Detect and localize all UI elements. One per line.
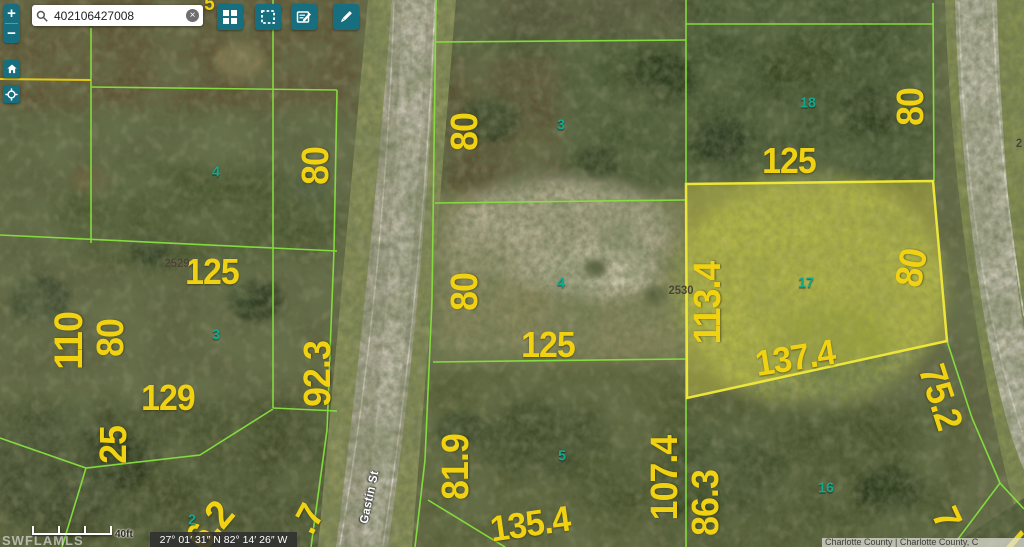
scale-label: 40ft (115, 529, 133, 540)
home-icon (6, 63, 18, 75)
search-icon (36, 10, 48, 22)
annotate-button[interactable] (291, 4, 317, 30)
note-edit-icon (296, 9, 312, 25)
locate-crosshair-icon (5, 88, 18, 101)
scale-bar (32, 526, 112, 535)
zoom-in-button[interactable]: + (3, 4, 20, 23)
zoom-out-button[interactable]: − (3, 24, 20, 43)
parcel-search-bar: × (32, 5, 203, 26)
coordinates-readout: 27° 01′ 31″ N 82° 14′ 26″ W (150, 532, 297, 547)
locate-button[interactable] (3, 85, 20, 103)
yellow-boundary-line (0, 79, 91, 80)
search-input[interactable] (52, 8, 186, 24)
layers-button[interactable] (217, 4, 243, 30)
draw-measure-button[interactable] (333, 4, 359, 30)
watermark: SWFLAMLS (2, 533, 84, 547)
marquee-selection-icon (260, 9, 276, 25)
aerial-map[interactable] (0, 0, 1024, 547)
select-area-button[interactable] (255, 4, 281, 30)
map-attribution: Charlotte County | Charlotte County, C (822, 538, 1024, 547)
clear-search-icon[interactable]: × (186, 9, 199, 22)
home-button[interactable] (3, 60, 20, 78)
map-viewport: 80 125 110 80 92.3 129 25 6.2 .7 80 80 1… (0, 0, 1024, 547)
pencil-icon (338, 9, 354, 25)
grid-icon (222, 9, 238, 25)
zoom-controls: + − (3, 4, 20, 43)
